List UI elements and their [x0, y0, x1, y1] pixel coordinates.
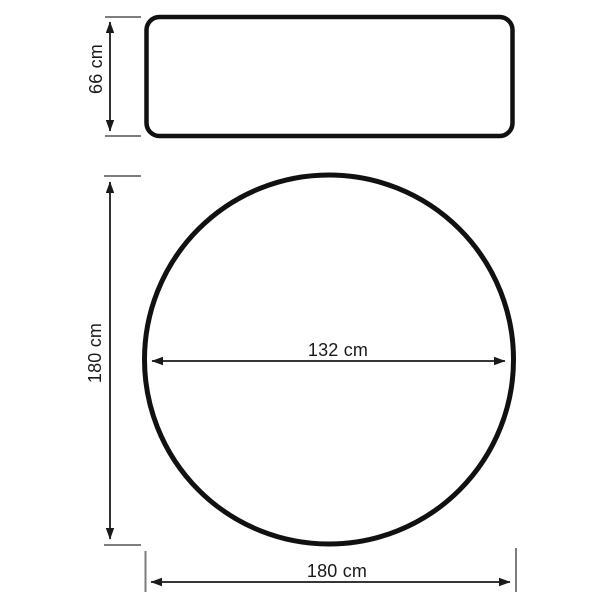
side-view-outline	[147, 17, 513, 136]
dimension-label-overall-width: 180 cm	[307, 561, 367, 581]
dimension-overall-width: 180 cm	[146, 548, 517, 592]
top-view: 180 cm 132 cm 180 cm	[85, 175, 516, 592]
dimension-diagram: 66 cm 180 cm 132 cm 180	[0, 0, 600, 600]
dimension-label-inner-diameter: 132 cm	[308, 340, 368, 360]
dimension-label-top-height: 180 cm	[85, 323, 105, 383]
dimension-label-side-height: 66 cm	[86, 44, 106, 94]
dimension-side-height: 66 cm	[86, 17, 141, 136]
side-view: 66 cm	[86, 17, 513, 136]
diagram-canvas: 66 cm 180 cm 132 cm 180	[0, 0, 600, 600]
dimension-top-height: 180 cm	[85, 176, 141, 545]
